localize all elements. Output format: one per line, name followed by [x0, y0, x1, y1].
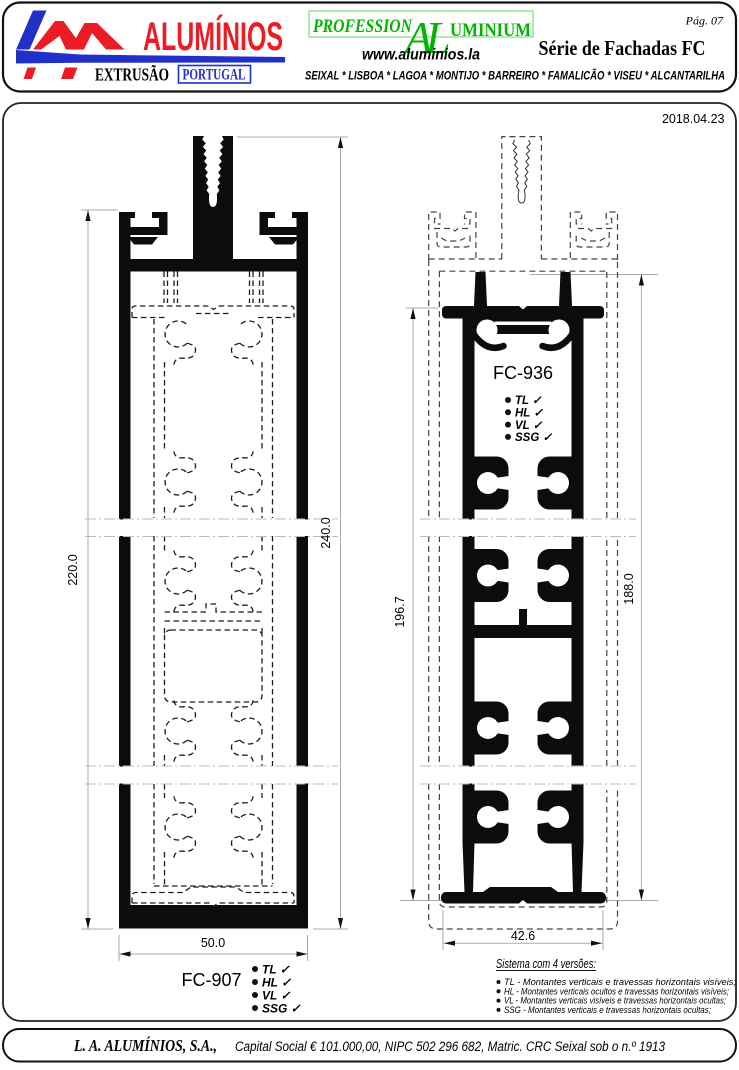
svg-text:SSG - Montantes verticais e tr: SSG - Montantes verticais e travessas ho… — [504, 1005, 711, 1015]
svg-text:HL ✓: HL ✓ — [515, 408, 543, 420]
svg-text:SSG ✓: SSG ✓ — [515, 432, 552, 444]
svg-text:PROFESSION: PROFESSION — [312, 17, 412, 37]
svg-text:TL ✓: TL ✓ — [515, 395, 542, 407]
svg-text:Capital Social € 101.000,00, N: Capital Social € 101.000,00, NIPC 502 29… — [235, 1039, 665, 1054]
svg-text:220.0: 220.0 — [66, 554, 80, 585]
svg-text:Série de Fachadas FC: Série de Fachadas FC — [539, 36, 706, 60]
svg-text:HL ✓: HL ✓ — [262, 976, 292, 990]
svg-text:FC-907: FC-907 — [181, 970, 241, 990]
svg-text:196.7: 196.7 — [393, 596, 407, 627]
svg-text:UMINIUM: UMINIUM — [450, 20, 531, 41]
svg-text:Sistema com 4 versões:: Sistema com 4 versões: — [496, 957, 596, 971]
svg-text:ALUMÍNIOS: ALUMÍNIOS — [143, 14, 283, 59]
svg-text:42.6: 42.6 — [511, 929, 535, 943]
svg-text:L. A. ALUMÍNIOS, S.A.,: L. A. ALUMÍNIOS, S.A., — [73, 1036, 217, 1055]
svg-text:www.aluminios.la: www.aluminios.la — [362, 47, 480, 64]
svg-text:TL ✓: TL ✓ — [262, 963, 291, 977]
svg-text:FC-936: FC-936 — [493, 363, 553, 383]
svg-text:VL ✓: VL ✓ — [515, 420, 543, 432]
svg-text:SSG ✓: SSG ✓ — [262, 1002, 302, 1016]
svg-text:SEIXAL * LISBOA * LAGOA * MONT: SEIXAL * LISBOA * LAGOA * MONTIJO * BARR… — [305, 70, 725, 83]
svg-text:240.0: 240.0 — [319, 517, 333, 548]
svg-text:PORTUGAL: PORTUGAL — [183, 67, 246, 84]
svg-text:EXTRUSÃO: EXTRUSÃO — [95, 64, 169, 85]
svg-text:188.0: 188.0 — [622, 573, 636, 604]
svg-text:VL ✓: VL ✓ — [262, 989, 291, 1003]
svg-text:50.0: 50.0 — [201, 936, 225, 950]
svg-text:Pág. 07: Pág. 07 — [685, 14, 724, 28]
svg-text:2018.04.23: 2018.04.23 — [662, 112, 725, 126]
